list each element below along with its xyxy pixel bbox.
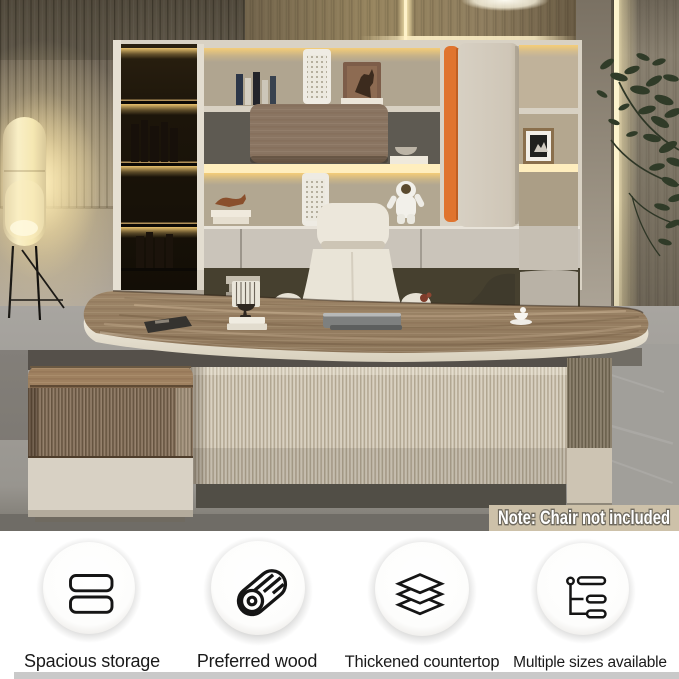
svg-text:Multiple sizes available: Multiple sizes available [513, 654, 667, 671]
svg-text:Preferred wood: Preferred wood [197, 651, 317, 671]
svg-text:Thickened countertop: Thickened countertop [345, 653, 500, 671]
svg-text:Note: Chair not included: Note: Chair not included [498, 508, 670, 529]
svg-text:Spacious storage: Spacious storage [24, 651, 160, 671]
